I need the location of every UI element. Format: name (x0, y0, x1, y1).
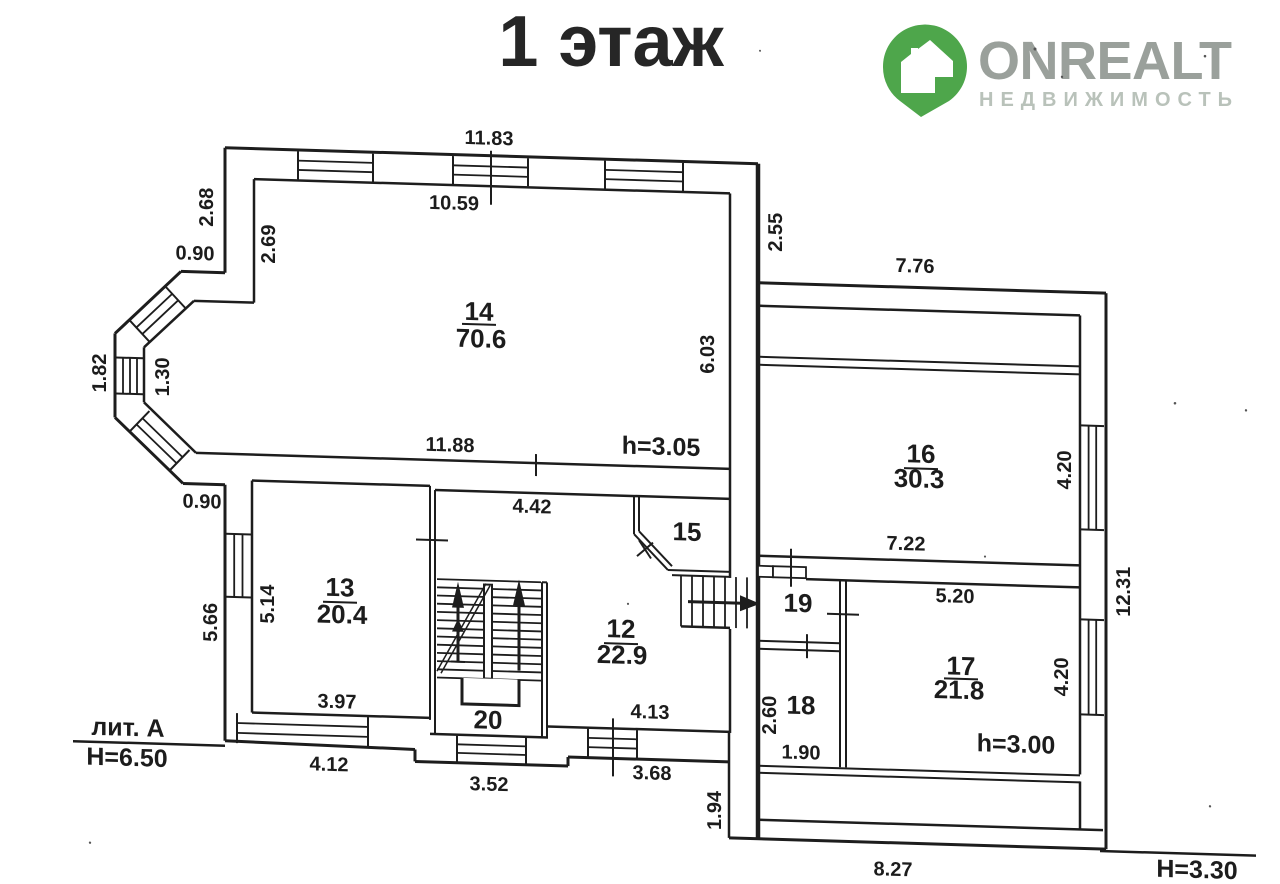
svg-text:12.31: 12.31 (1113, 566, 1135, 617)
svg-text:21.8: 21.8 (934, 674, 985, 706)
svg-text:10.59: 10.59 (429, 192, 479, 215)
svg-text:2.60: 2.60 (759, 695, 781, 735)
svg-text:1 этаж: 1 этаж (498, 2, 724, 82)
svg-text:5.20: 5.20 (936, 585, 975, 608)
svg-text:20: 20 (474, 704, 503, 735)
svg-text:3.68: 3.68 (633, 762, 672, 785)
svg-text:h=3.00: h=3.00 (977, 729, 1056, 759)
svg-text:11.88: 11.88 (426, 434, 475, 457)
svg-text:НЕДВИЖИМОСТЬ: НЕДВИЖИМОСТЬ (979, 89, 1239, 111)
svg-text:1.82: 1.82 (89, 353, 111, 393)
svg-text:0.90: 0.90 (183, 490, 222, 513)
svg-text:3.52: 3.52 (470, 773, 509, 796)
svg-text:лит. А: лит. А (91, 713, 164, 743)
svg-text:4.20: 4.20 (1051, 657, 1073, 697)
svg-text:2.69: 2.69 (258, 224, 280, 264)
svg-text:Н=3.30: Н=3.30 (1156, 855, 1237, 884)
svg-text:18: 18 (787, 690, 816, 721)
svg-text:11.83: 11.83 (465, 127, 514, 150)
svg-text:1.30: 1.30 (152, 357, 174, 397)
svg-text:3.97: 3.97 (318, 691, 357, 714)
svg-text:30.3: 30.3 (894, 463, 945, 495)
svg-text:20.4: 20.4 (317, 599, 368, 631)
svg-text:4.20: 4.20 (1054, 450, 1076, 490)
svg-text:2.55: 2.55 (765, 212, 787, 252)
svg-text:Н=6.50: Н=6.50 (86, 743, 167, 773)
svg-text:7.22: 7.22 (887, 533, 926, 556)
svg-text:h=3.05: h=3.05 (622, 432, 701, 462)
svg-text:5.66: 5.66 (200, 603, 222, 643)
svg-text:1.90: 1.90 (782, 741, 821, 764)
svg-text:ONREALT: ONREALT (978, 31, 1232, 91)
svg-text:0.90: 0.90 (176, 242, 215, 265)
svg-text:4.42: 4.42 (513, 495, 552, 518)
svg-text:70.6: 70.6 (456, 323, 507, 355)
svg-text:5.14: 5.14 (257, 583, 279, 623)
svg-text:6.03: 6.03 (697, 334, 719, 374)
svg-text:2.68: 2.68 (196, 187, 218, 227)
svg-text:8.27: 8.27 (874, 858, 913, 881)
svg-text:19: 19 (784, 588, 813, 619)
svg-text:4.12: 4.12 (310, 753, 349, 776)
svg-text:1.94: 1.94 (704, 790, 726, 830)
svg-text:15: 15 (673, 516, 702, 547)
svg-text:22.9: 22.9 (597, 639, 648, 671)
svg-text:7.76: 7.76 (896, 255, 935, 278)
svg-text:4.13: 4.13 (631, 701, 670, 724)
